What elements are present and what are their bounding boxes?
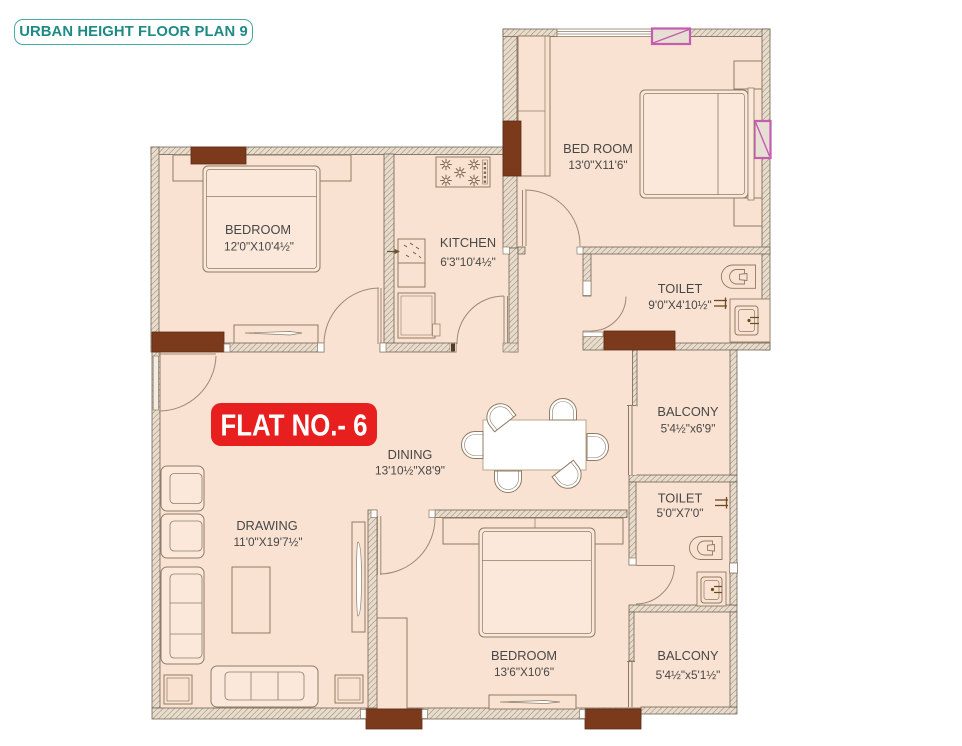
svg-text:13'6"X10'6": 13'6"X10'6" [494, 665, 554, 679]
svg-text:KITCHEN: KITCHEN [440, 235, 496, 250]
svg-text:11'0"X19'7½": 11'0"X19'7½" [233, 535, 302, 549]
svg-text:TOILET: TOILET [658, 491, 703, 506]
svg-text:BEDROOM: BEDROOM [491, 648, 557, 663]
svg-text:BALCONY: BALCONY [657, 404, 719, 419]
svg-text:13'10½"X8'9": 13'10½"X8'9" [375, 464, 445, 478]
svg-text:5'4½"x5'1½": 5'4½"x5'1½" [656, 668, 721, 682]
svg-text:BED ROOM: BED ROOM [563, 141, 633, 156]
svg-text:12'0"X10'4½": 12'0"X10'4½" [224, 240, 294, 254]
svg-text:5'0"X7'0": 5'0"X7'0" [657, 506, 704, 520]
svg-text:BALCONY: BALCONY [657, 648, 719, 663]
svg-text:FLAT NO.- 6: FLAT NO.- 6 [221, 409, 368, 443]
svg-text:DRAWING: DRAWING [236, 518, 297, 533]
svg-text:6'3"10'4½": 6'3"10'4½" [440, 255, 496, 269]
svg-text:TOILET: TOILET [658, 281, 703, 296]
svg-text:9'0"X4'10½": 9'0"X4'10½" [648, 298, 711, 312]
svg-text:5'4½"x6'9": 5'4½"x6'9" [661, 422, 716, 436]
svg-text:BEDROOM: BEDROOM [225, 222, 291, 237]
svg-text:DINING: DINING [388, 447, 433, 462]
svg-text:13'0"X11'6": 13'0"X11'6" [568, 158, 627, 172]
